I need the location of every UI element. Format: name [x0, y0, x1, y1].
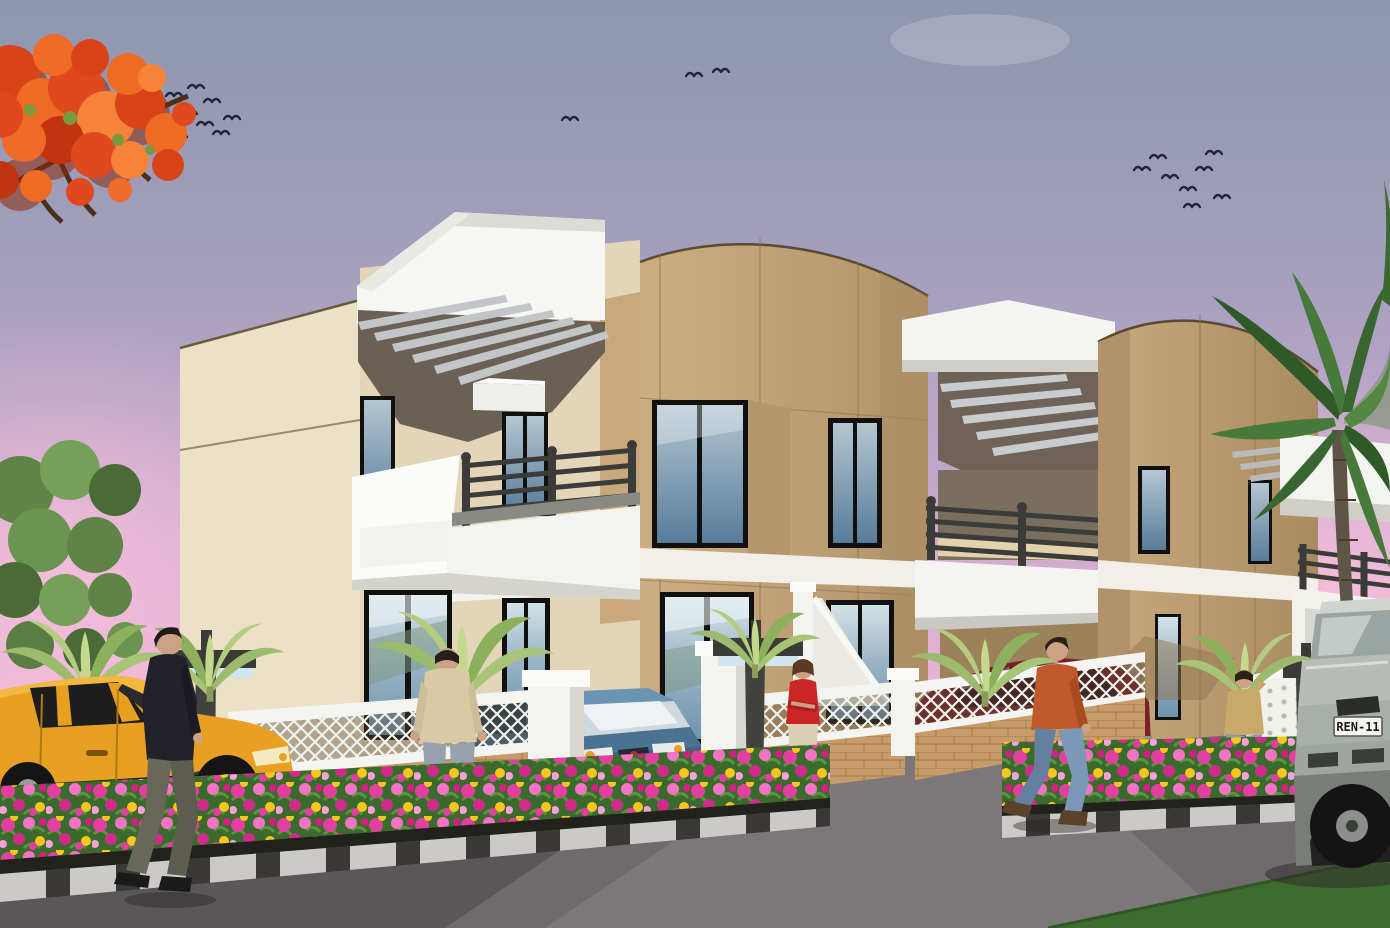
unit3-window-upper-left: [1138, 466, 1170, 554]
unit3-window-upper-right: [1248, 480, 1272, 564]
fence-post: [887, 668, 919, 756]
scene-svg: REN-11: [0, 0, 1390, 928]
render-canvas: REN-11: [0, 0, 1390, 928]
cloud: [890, 14, 1070, 66]
unit2-window-upper-right: [828, 418, 882, 548]
unit1-corbel: [473, 383, 545, 412]
license-plate: REN-11: [1334, 717, 1382, 736]
unit2-window-upper-left: [652, 400, 748, 548]
license-plate-text: REN-11: [1336, 720, 1379, 734]
